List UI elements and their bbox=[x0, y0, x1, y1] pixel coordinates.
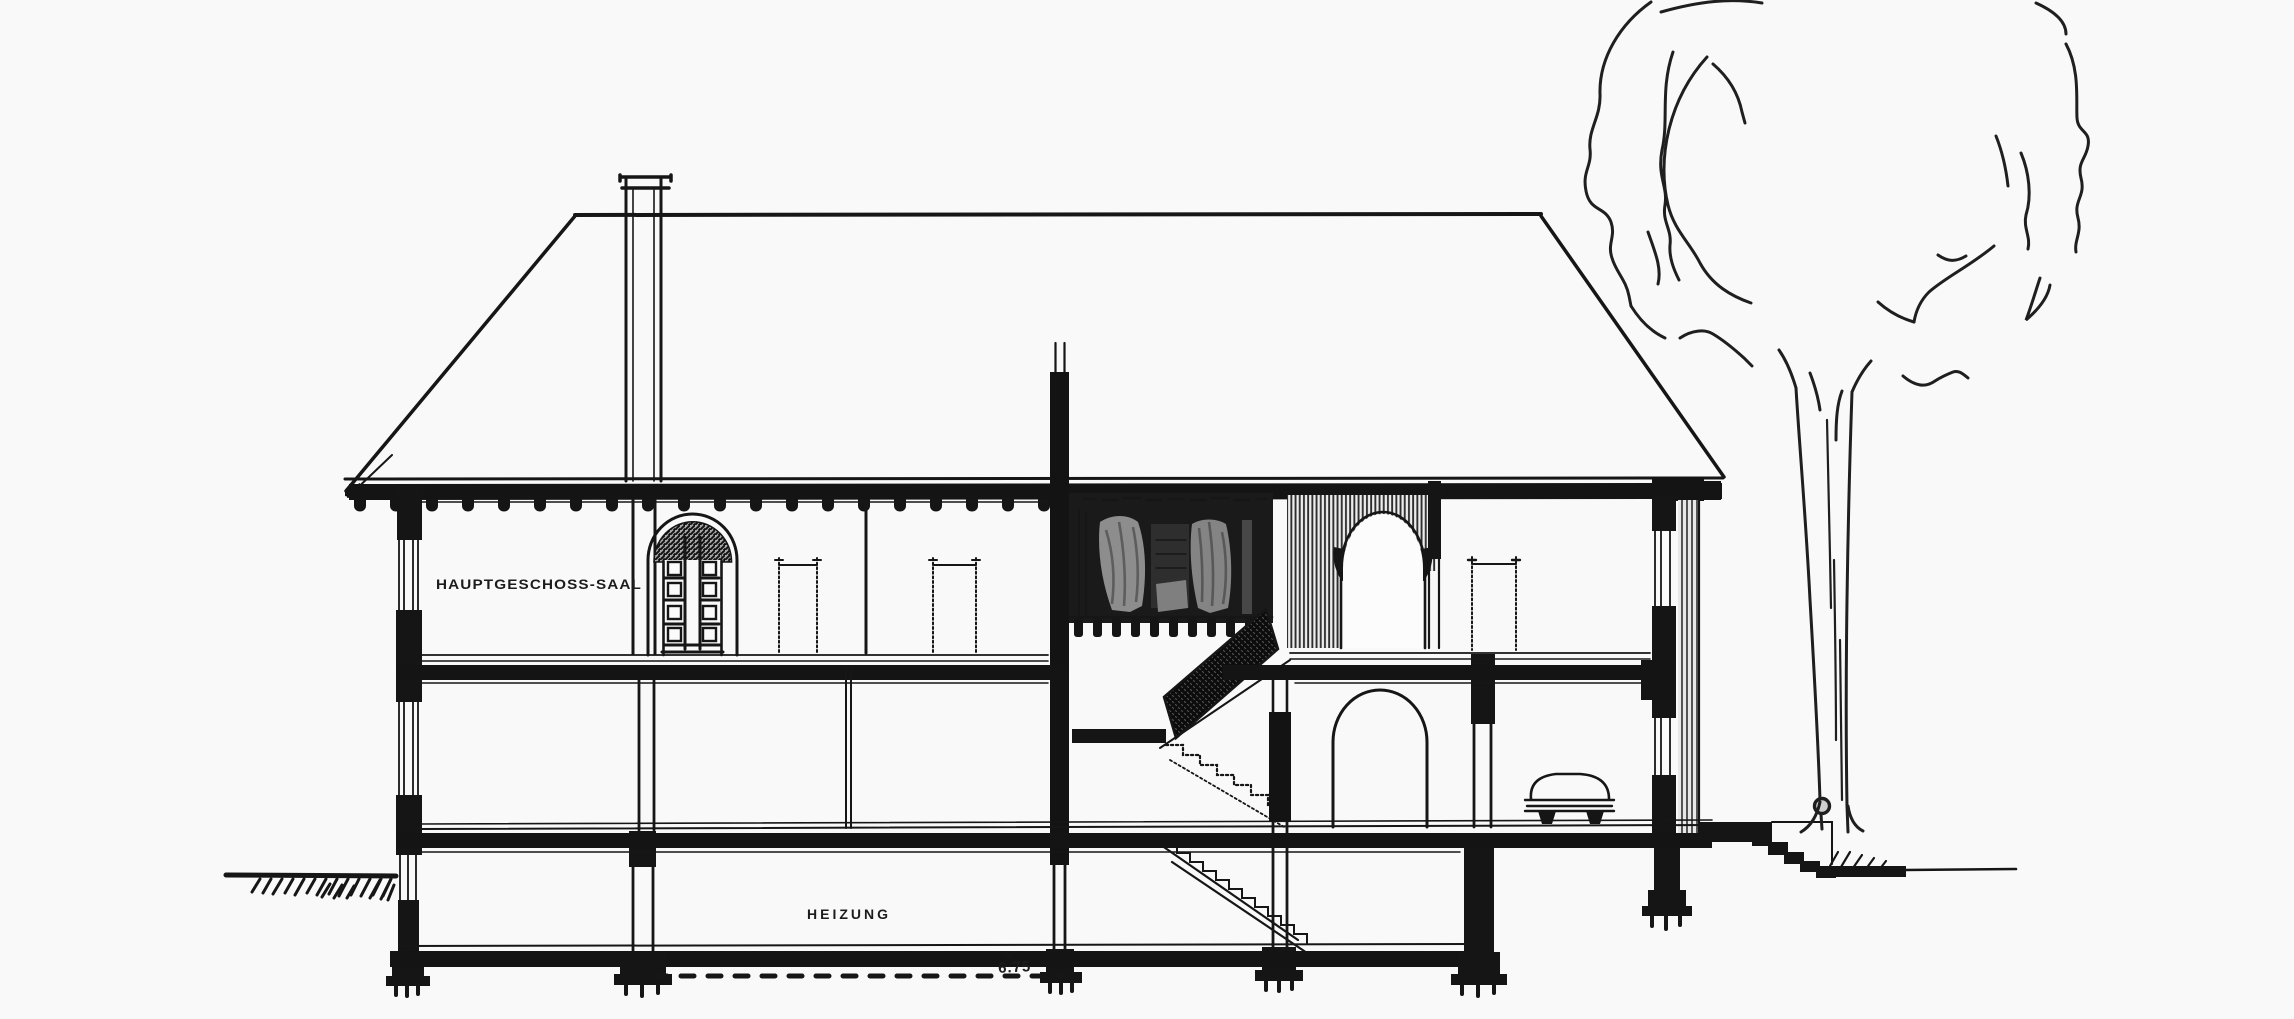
svg-text:HAUPTGESCHOSS-SAAL: HAUPTGESCHOSS-SAAL bbox=[436, 577, 642, 592]
svg-text:HEIZUNG: HEIZUNG bbox=[807, 906, 891, 922]
svg-text:6.75: 6.75 bbox=[998, 958, 1032, 977]
